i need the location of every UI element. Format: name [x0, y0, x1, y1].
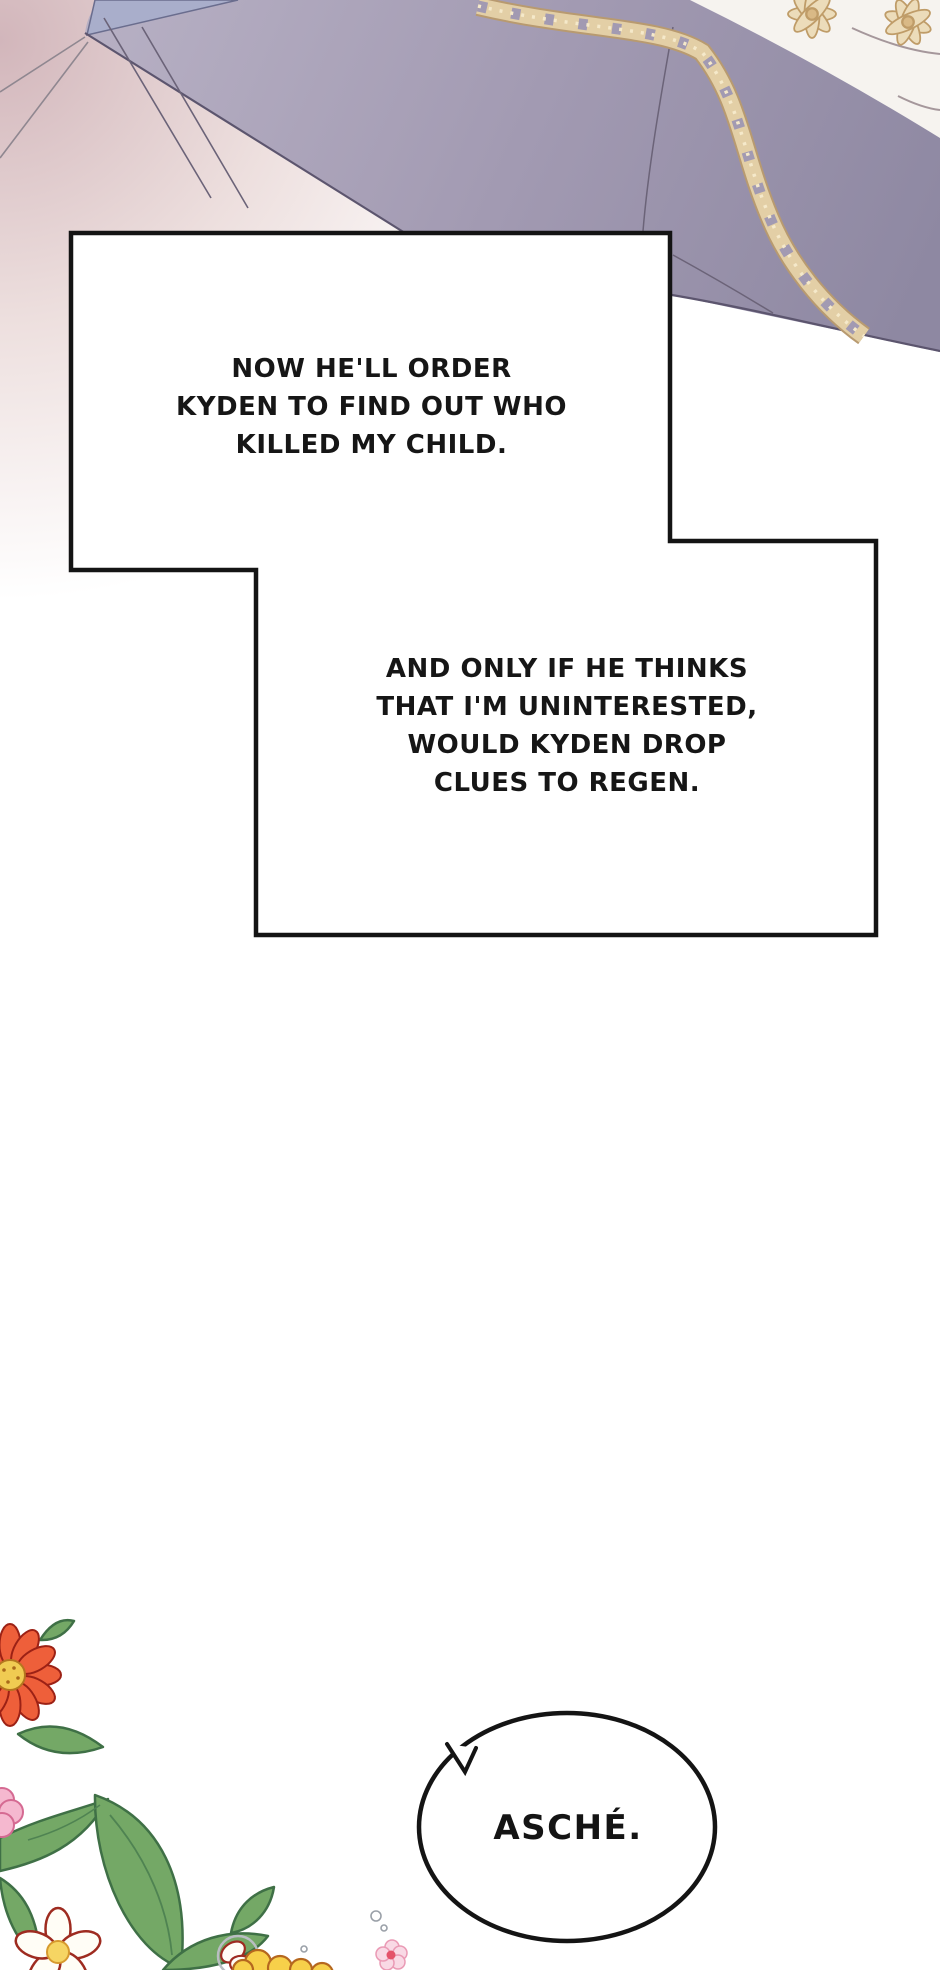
narration-line: WOULD KYDEN DROP [256, 726, 878, 764]
leaf [40, 1620, 74, 1640]
narration-line: THAT I'M UNINTERESTED, [256, 688, 878, 726]
narration-line: KYDEN TO FIND OUT WHO [71, 388, 672, 426]
leaf [231, 1887, 274, 1933]
speech-bubble-text: ASCHÉ. [420, 1806, 716, 1850]
leaf [18, 1726, 103, 1753]
comic-page: NOW HE'LL ORDER KYDEN TO FIND OUT WHO KI… [0, 0, 940, 1970]
narration-box-2-text: AND ONLY IF HE THINKS THAT I'M UNINTERES… [256, 650, 878, 802]
narration-line: KILLED MY CHILD. [71, 426, 672, 464]
leaf [95, 1795, 183, 1968]
narration-line: NOW HE'LL ORDER [71, 350, 672, 388]
flower-cluster-illustration [0, 1620, 407, 1970]
narration-line: CLUES TO REGEN. [256, 764, 878, 802]
small-pink-flower [376, 1940, 407, 1970]
artwork-layer [0, 0, 940, 1970]
narration-line: AND ONLY IF HE THINKS [256, 650, 878, 688]
sparkle-bubbles [301, 1911, 387, 1952]
narration-box-1-text: NOW HE'LL ORDER KYDEN TO FIND OUT WHO KI… [71, 350, 672, 464]
